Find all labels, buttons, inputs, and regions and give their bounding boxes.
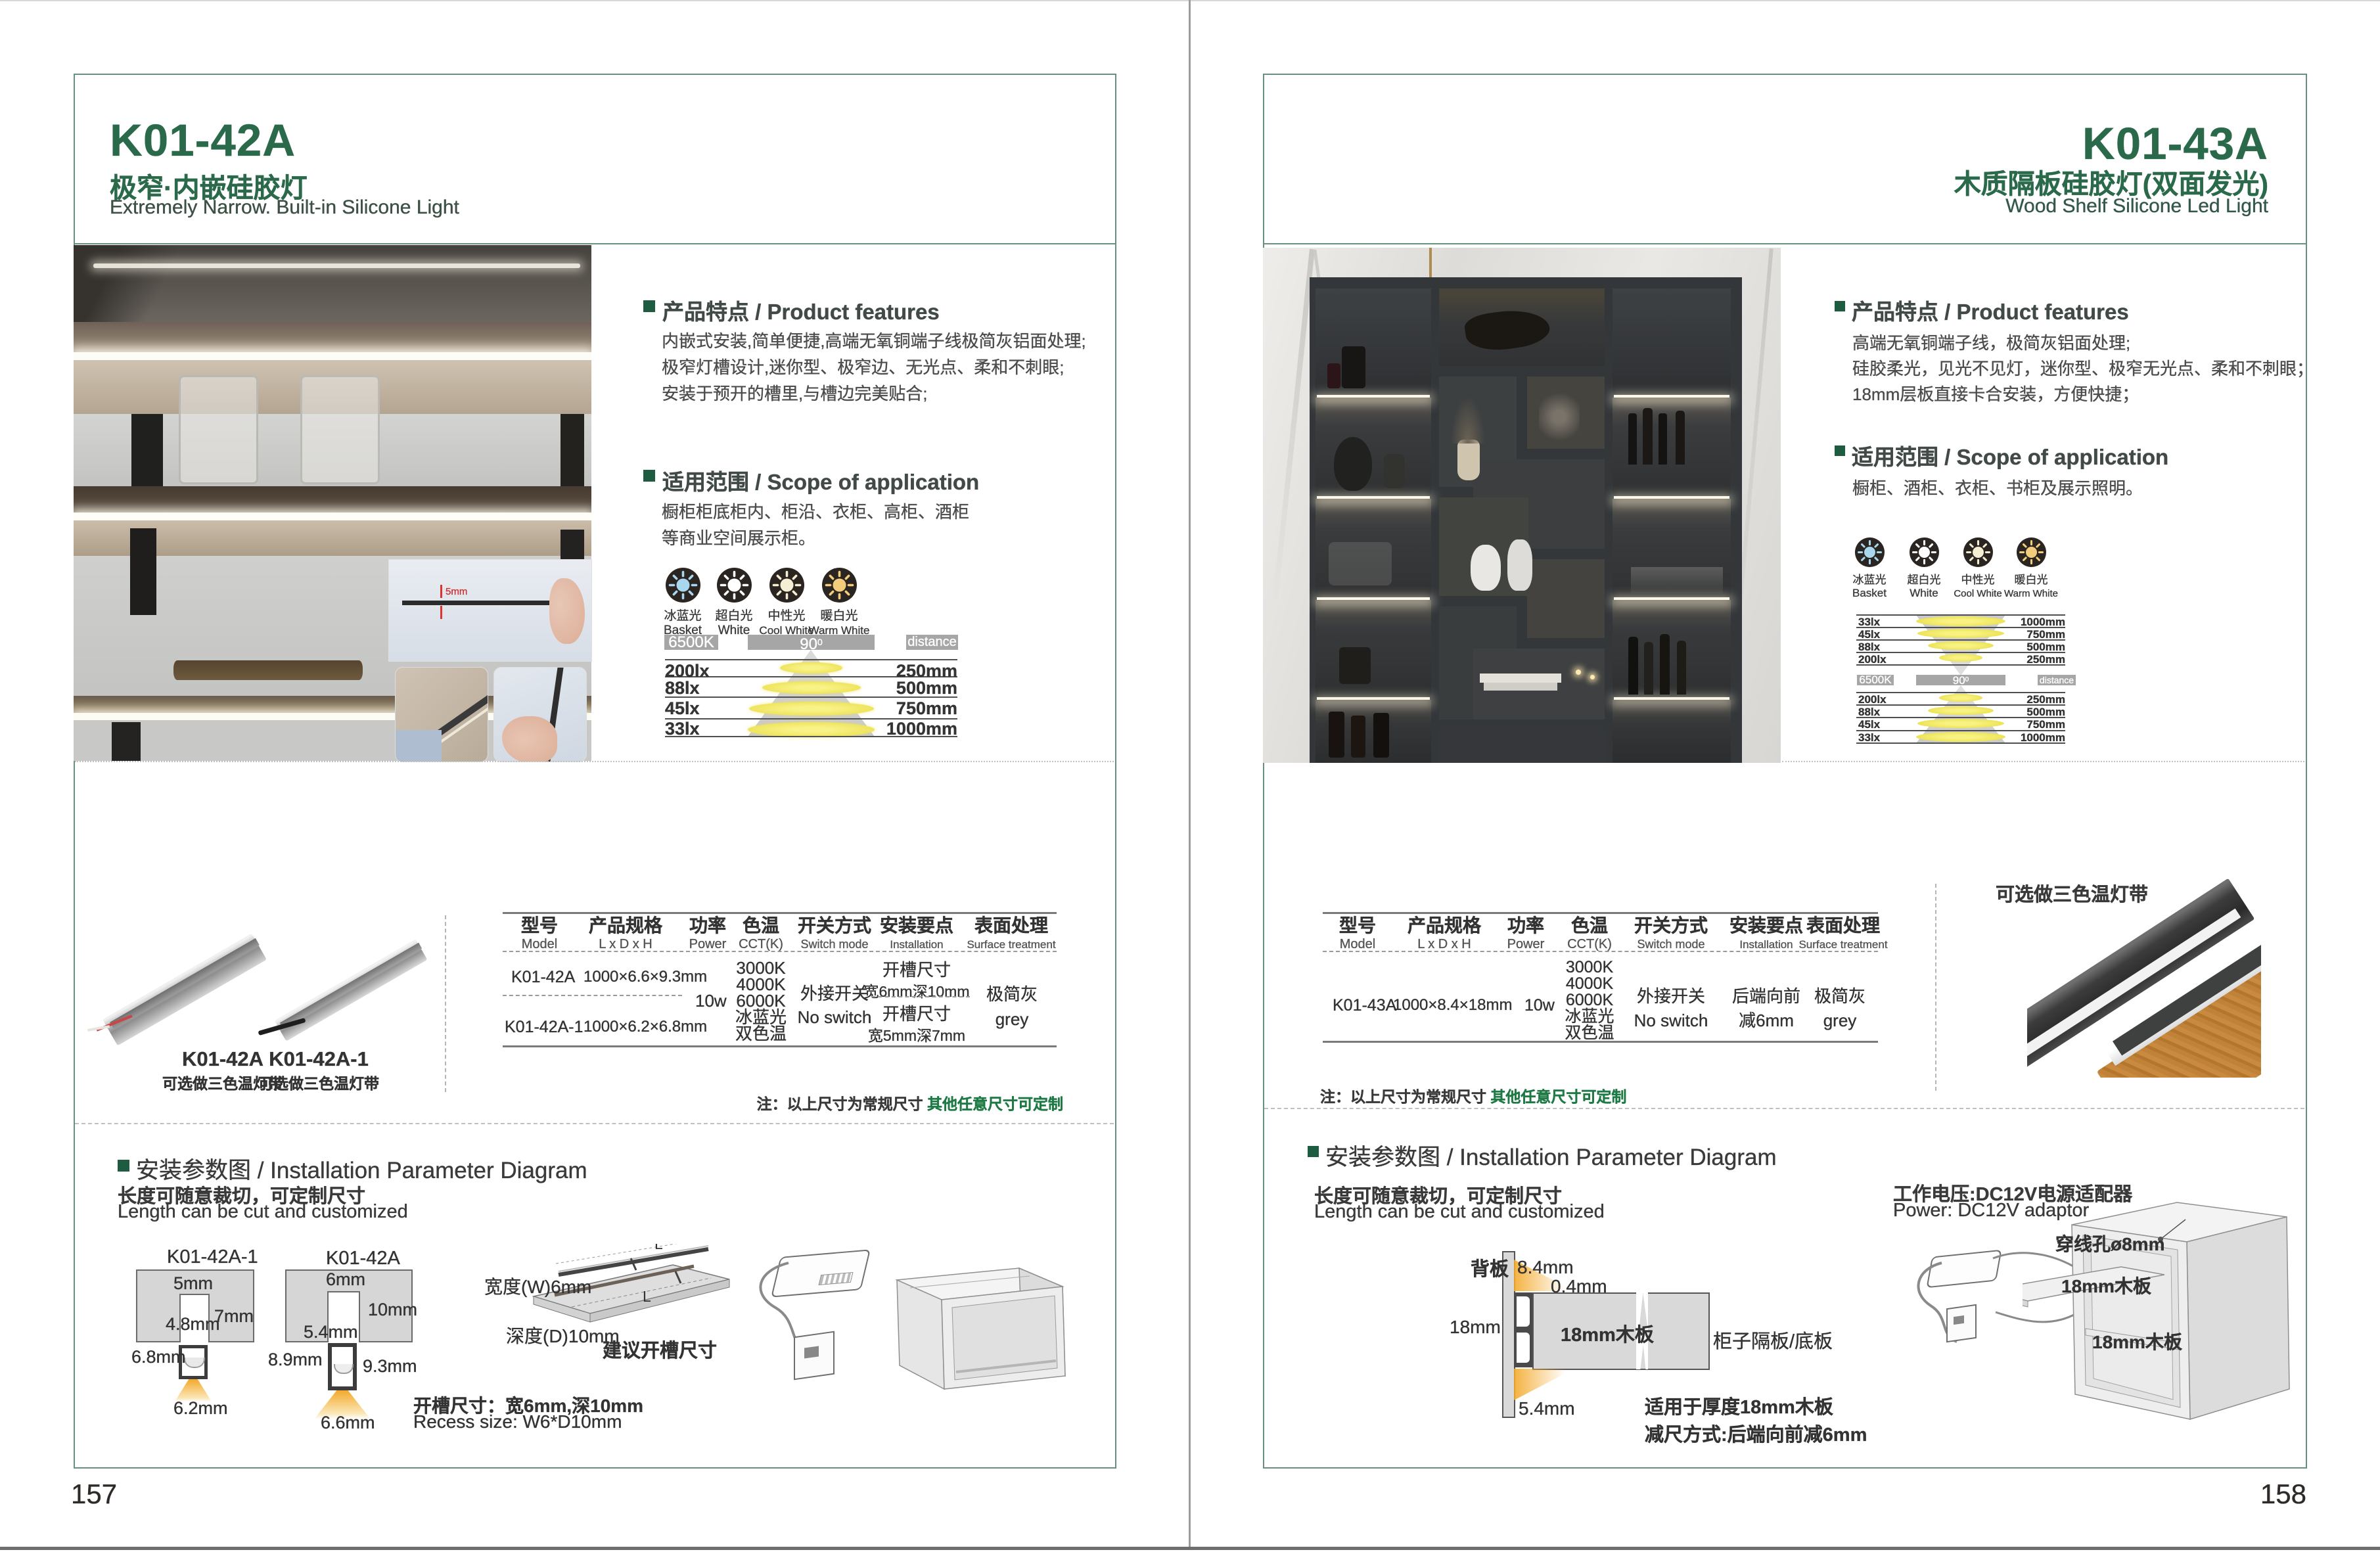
- svg-text:L: L: [643, 1288, 651, 1305]
- svg-text:L: L: [654, 1244, 663, 1252]
